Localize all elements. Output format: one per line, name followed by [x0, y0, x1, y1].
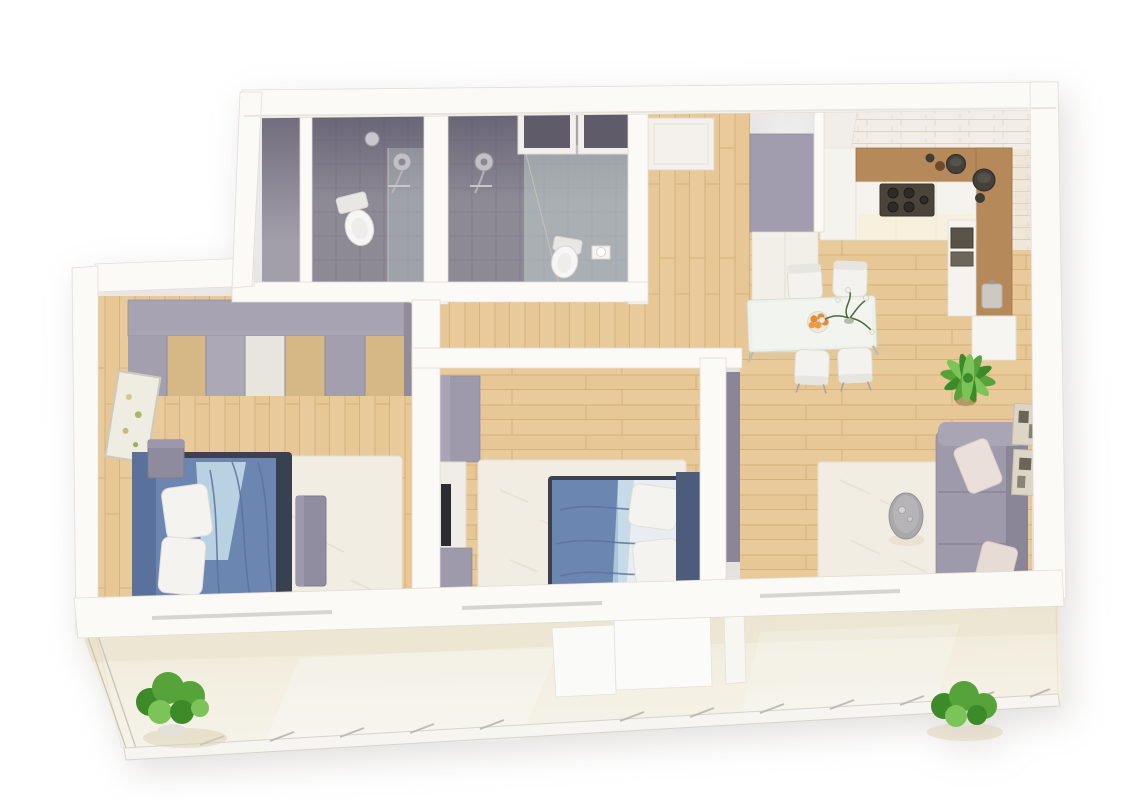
fruit-bowl-with-oranges [808, 312, 829, 333]
tall-cabinet [972, 316, 1016, 360]
vestibule-floor [440, 302, 648, 348]
wall-wardrobe-strip [726, 372, 740, 562]
sink [982, 280, 1002, 309]
wardrobe-front [128, 336, 404, 396]
floor-plan-stage [0, 0, 1135, 800]
wall-bath-separator [424, 106, 448, 304]
balcony-partition-3 [724, 611, 746, 684]
wardrobe-top [128, 300, 404, 336]
duct-shade [262, 112, 300, 242]
dark-transom-2 [584, 112, 628, 148]
toilet-paper-holder [592, 246, 610, 259]
outer-wall-left-lower [72, 266, 98, 634]
bedroom-1 [105, 300, 420, 624]
bed-pillow-1 [161, 483, 214, 541]
bench [296, 496, 326, 586]
bed-pillow-2 [632, 538, 682, 587]
wall-bedroom-separator [412, 300, 440, 600]
nightstand [148, 440, 184, 478]
wall-duct [300, 108, 312, 286]
microwave [951, 252, 973, 266]
kitchen-left-column [820, 148, 856, 240]
wall-living-west [700, 358, 726, 598]
oven [951, 228, 973, 248]
cooktop [880, 184, 934, 216]
bed-pillow-1 [627, 483, 680, 531]
sideboard [440, 376, 480, 462]
chair-top-1 [787, 263, 823, 301]
wall-kitchen-left [814, 106, 824, 232]
brick-backsplash [846, 106, 1034, 150]
balcony-partition [552, 625, 616, 697]
dark-transom-1 [524, 112, 570, 148]
wall-bath2-right [628, 106, 648, 304]
apartment-scene [72, 82, 1066, 760]
floor-plan-svg [0, 0, 1135, 800]
outer-wall-left-upper [232, 92, 262, 288]
bed-pillow-2 [158, 536, 207, 596]
balcony-partition-2 [614, 614, 712, 690]
wall-bedroom-2-north [412, 348, 742, 368]
wall-step [95, 258, 254, 292]
wardrobe [128, 300, 420, 396]
wall-tv [441, 484, 451, 546]
entrance-door [648, 118, 714, 170]
wall-bath-south [232, 282, 648, 302]
outer-wall-right [1030, 82, 1066, 600]
hall-closet-top [750, 134, 816, 232]
